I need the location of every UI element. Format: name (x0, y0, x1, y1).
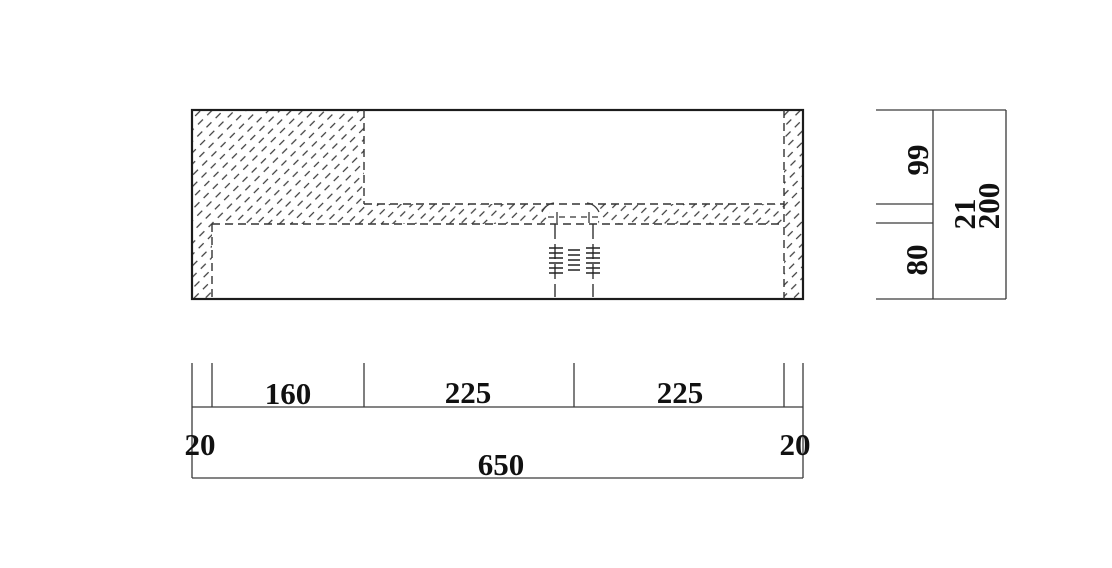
dim-label-160: 160 (265, 376, 312, 411)
dim-label-200: 200 (971, 183, 1006, 230)
right-dimension-chain: 99 80 21 200 (876, 110, 1006, 299)
hatch-slab-right (598, 204, 784, 224)
dim-label-225-right: 225 (657, 375, 704, 410)
hatch-left-wall (192, 224, 212, 299)
dim-label-20-left: 20 (185, 427, 216, 462)
dim-label-225-left: 225 (445, 375, 492, 410)
dim-label-80: 80 (899, 245, 934, 276)
thread-left (549, 248, 563, 273)
technical-drawing-page: 99 80 21 200 160 225 225 20 20 650 (0, 0, 1112, 568)
hatch-right-wall (784, 110, 803, 299)
hatch-slab-left (364, 204, 550, 224)
thread-center (568, 250, 580, 270)
dim-label-99: 99 (900, 145, 935, 176)
section-view (192, 110, 803, 299)
bottom-dimension-chain: 160 225 225 20 20 650 (185, 363, 811, 482)
technical-drawing-canvas: 99 80 21 200 160 225 225 20 20 650 (0, 0, 1112, 568)
dim-label-20-right: 20 (780, 427, 811, 462)
dim-label-650: 650 (478, 447, 525, 482)
hatch-top-left-block (192, 110, 364, 224)
drain-detail (542, 203, 600, 297)
